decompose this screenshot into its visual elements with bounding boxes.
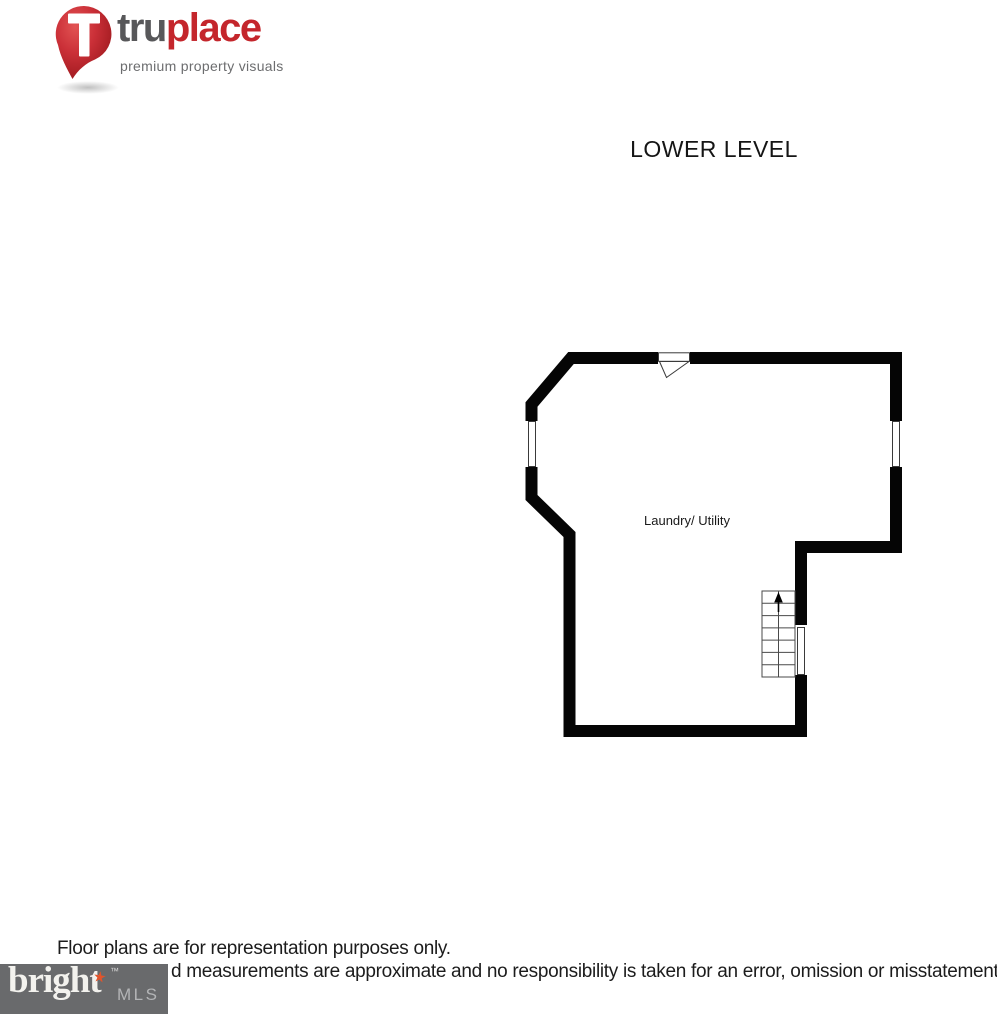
star-icon: ★ — [92, 967, 108, 987]
wall-opening-icon — [798, 628, 805, 675]
room-label: Laundry/ Utility — [560, 513, 814, 528]
trademark-symbol: ™ — [110, 966, 119, 976]
floorplan-walls — [532, 358, 897, 731]
brand-name-part1: tru — [117, 6, 166, 50]
entry-door-icon — [659, 353, 690, 378]
pin-shadow — [57, 81, 119, 94]
brightmls-word: bright — [8, 959, 101, 1002]
brand-name-part2: place — [166, 6, 261, 50]
brand-tagline: premium property visuals — [120, 58, 284, 74]
brightmls-suffix: MLS — [117, 985, 159, 1005]
truplace-logo: truplace premium property visuals — [0, 0, 320, 110]
brand-wordmark: truplace — [117, 8, 261, 48]
footer-disclaimer-line1: Floor plans are for representation purpo… — [57, 938, 451, 960]
map-pin-icon — [48, 1, 114, 85]
page-title: LOWER LEVEL — [539, 136, 889, 163]
floorplan — [500, 330, 920, 750]
footer-disclaimer-line2: d measurements are approximate and no re… — [171, 961, 997, 983]
window-left-icon — [529, 422, 536, 467]
window-right-icon — [893, 422, 900, 467]
brightmls-logo: bright ★ ™ MLS — [0, 964, 168, 1014]
